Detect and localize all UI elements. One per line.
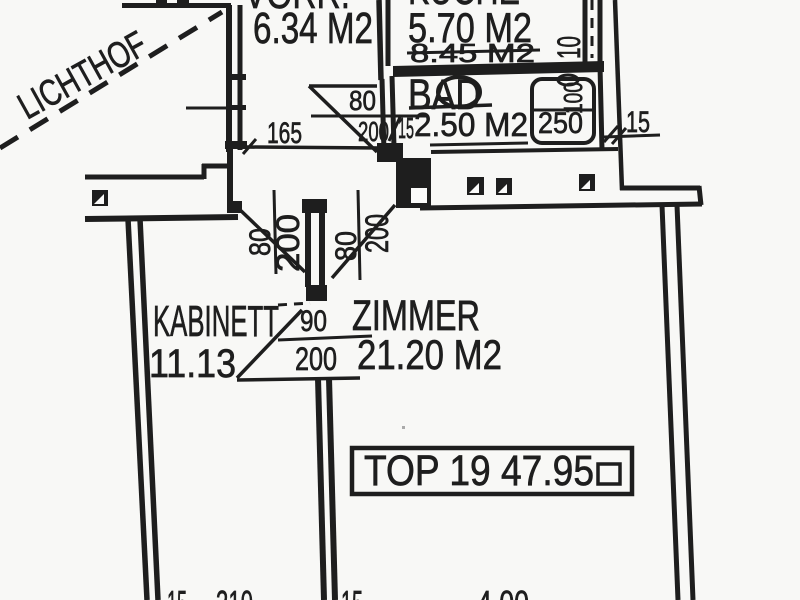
svg-text:165: 165 xyxy=(267,117,302,150)
svg-text:15: 15 xyxy=(167,583,187,600)
svg-text:15: 15 xyxy=(341,583,363,600)
svg-text:6.34 M2: 6.34 M2 xyxy=(253,4,373,53)
svg-text:10: 10 xyxy=(551,36,587,59)
svg-text:200: 200 xyxy=(358,116,389,147)
svg-text:310: 310 xyxy=(216,583,253,600)
svg-text:100: 100 xyxy=(558,82,588,114)
svg-text:200: 200 xyxy=(359,214,395,253)
svg-text:2.50 M2: 2.50 M2 xyxy=(414,106,528,143)
svg-text:4.00: 4.00 xyxy=(477,583,529,600)
svg-text:200: 200 xyxy=(295,341,337,377)
svg-text:80: 80 xyxy=(349,85,376,116)
svg-text:11.13: 11.13 xyxy=(149,342,236,386)
svg-text:TOP 19 47.95: TOP 19 47.95 xyxy=(364,447,594,495)
svg-text:90: 90 xyxy=(300,305,327,338)
svg-text:200: 200 xyxy=(270,214,306,272)
svg-text:21.20 M2: 21.20 M2 xyxy=(357,331,502,378)
svg-text:KABINETT: KABINETT xyxy=(153,297,279,346)
